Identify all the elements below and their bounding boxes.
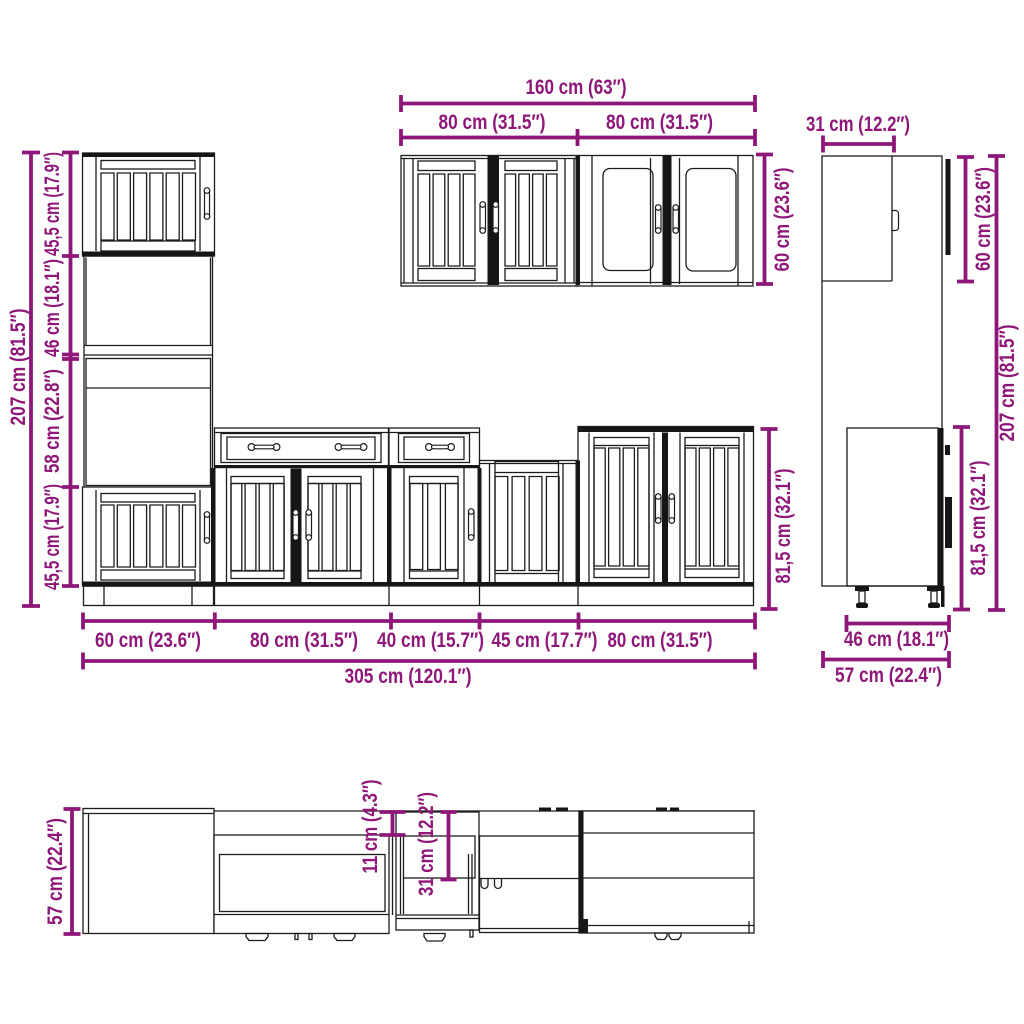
svg-text:40 cm (15.7″): 40 cm (15.7″) [377,629,484,652]
svg-text:31 cm (12.2″): 31 cm (12.2″) [806,113,910,136]
svg-text:160 cm (63″): 160 cm (63″) [526,76,627,99]
svg-text:45 cm (17.7″): 45 cm (17.7″) [492,629,598,652]
svg-text:305 cm (120.1″): 305 cm (120.1″) [345,665,472,688]
svg-text:207 cm (81.5″): 207 cm (81.5″) [996,325,1019,442]
svg-text:60 cm (23.6″): 60 cm (23.6″) [972,167,995,271]
svg-text:31 cm (12.2″): 31 cm (12.2″) [415,792,438,896]
svg-text:60 cm (23.6″): 60 cm (23.6″) [95,629,201,652]
svg-text:46 cm (18.1″): 46 cm (18.1″) [844,628,949,651]
svg-text:207 cm (81.5″): 207 cm (81.5″) [7,309,30,426]
svg-text:80 cm (31.5″): 80 cm (31.5″) [250,629,358,652]
svg-text:46 cm (18.1″): 46 cm (18.1″) [41,259,64,357]
svg-text:57 cm (22.4″): 57 cm (22.4″) [835,664,942,687]
svg-text:57 cm (22.4″): 57 cm (22.4″) [44,818,67,925]
svg-text:80 cm (31.5″): 80 cm (31.5″) [606,111,713,134]
svg-text:11 cm (4.3″): 11 cm (4.3″) [359,780,382,874]
svg-text:81,5 cm (32.1″): 81,5 cm (32.1″) [967,461,990,576]
svg-text:58 cm (22.8″): 58 cm (22.8″) [41,369,64,473]
svg-text:45,5 cm (17.9″): 45,5 cm (17.9″) [41,484,64,590]
svg-text:60 cm (23.6″): 60 cm (23.6″) [771,168,794,272]
svg-text:80 cm (31.5″): 80 cm (31.5″) [439,111,546,134]
svg-text:81,5 cm (32.1″): 81,5 cm (32.1″) [772,469,795,584]
svg-text:45,5 cm (17.9″): 45,5 cm (17.9″) [41,152,64,256]
svg-text:80 cm (31.5″): 80 cm (31.5″) [608,629,713,652]
